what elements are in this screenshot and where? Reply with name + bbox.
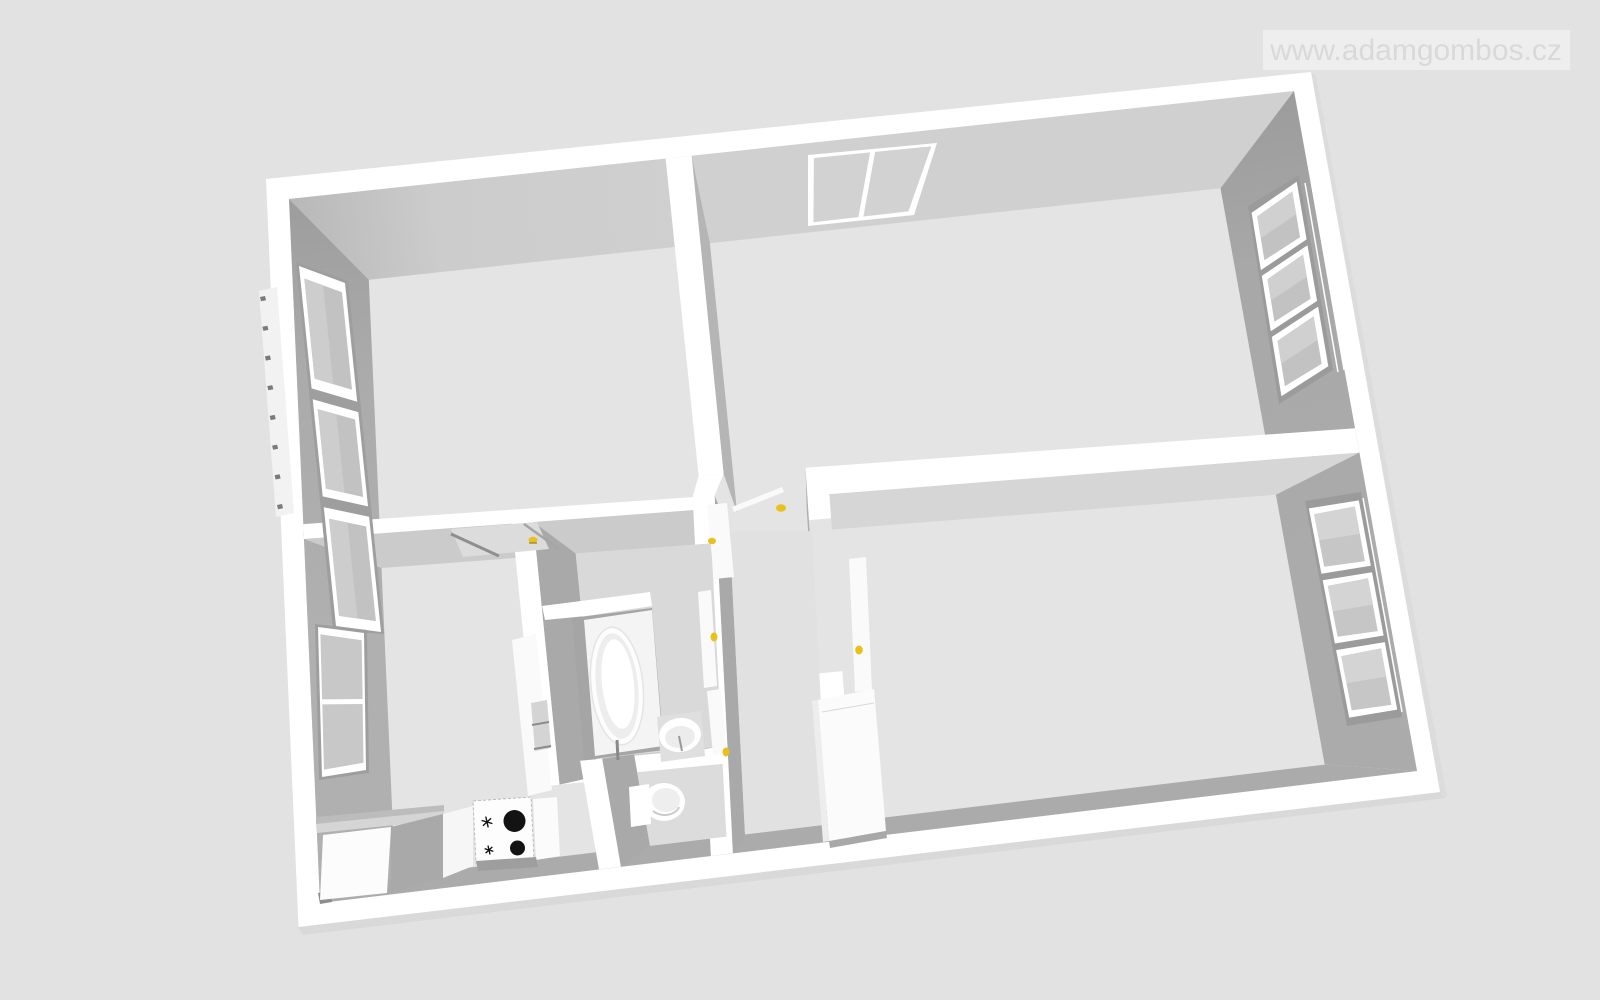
svg-text:www.adamgombos.cz: www.adamgombos.cz — [1269, 34, 1562, 67]
